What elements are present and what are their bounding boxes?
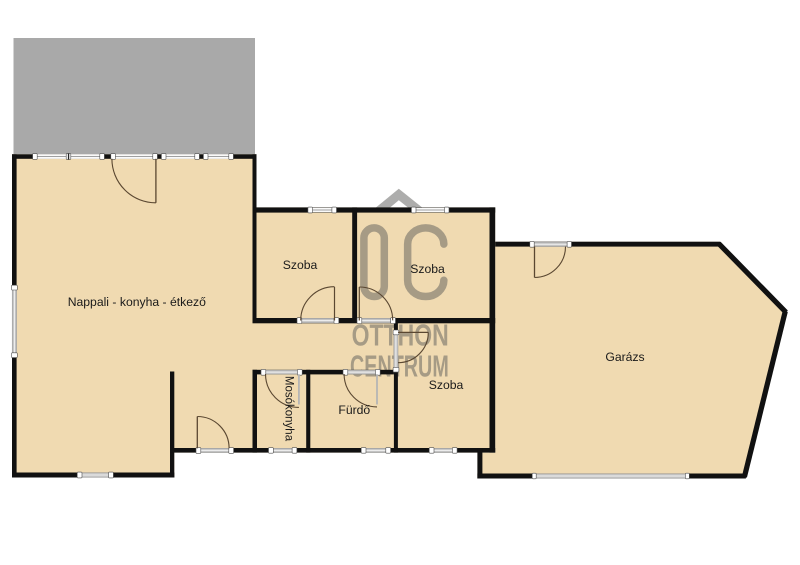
- svg-text:Nappali - konyha - étkező: Nappali - konyha - étkező: [68, 295, 206, 309]
- svg-text:Fürdő: Fürdő: [338, 403, 370, 417]
- svg-text:Szoba: Szoba: [283, 258, 318, 272]
- svg-text:Szoba: Szoba: [429, 378, 464, 392]
- svg-text:Szoba: Szoba: [410, 262, 445, 276]
- svg-text:OTTHON: OTTHON: [352, 318, 449, 352]
- svg-text:Garázs: Garázs: [605, 350, 644, 364]
- svg-text:Mosókonyha: Mosókonyha: [283, 376, 295, 442]
